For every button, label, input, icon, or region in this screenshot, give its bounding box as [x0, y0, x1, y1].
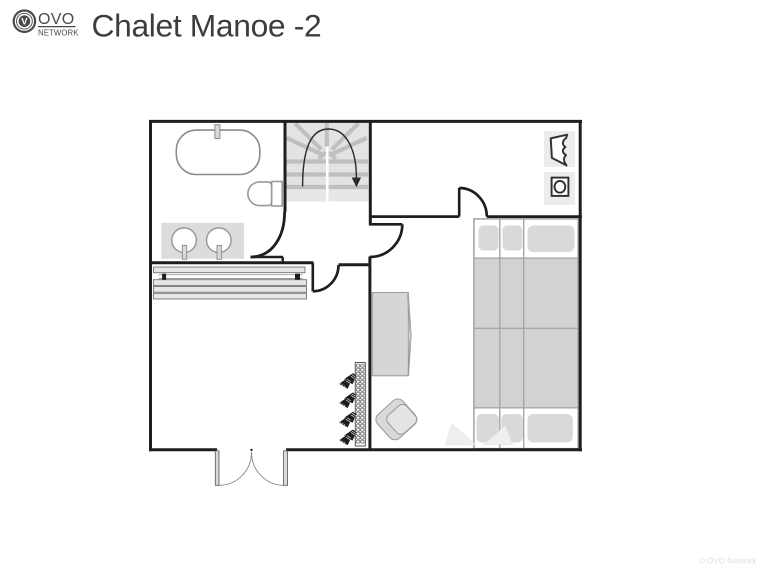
- svg-text:V: V: [21, 17, 28, 28]
- svg-text:© OVO Network: © OVO Network: [699, 557, 757, 566]
- svg-text:NETWORK: NETWORK: [38, 29, 79, 38]
- svg-text:OVO: OVO: [38, 11, 74, 28]
- svg-text:Chalet Manoe -2: Chalet Manoe -2: [92, 8, 322, 44]
